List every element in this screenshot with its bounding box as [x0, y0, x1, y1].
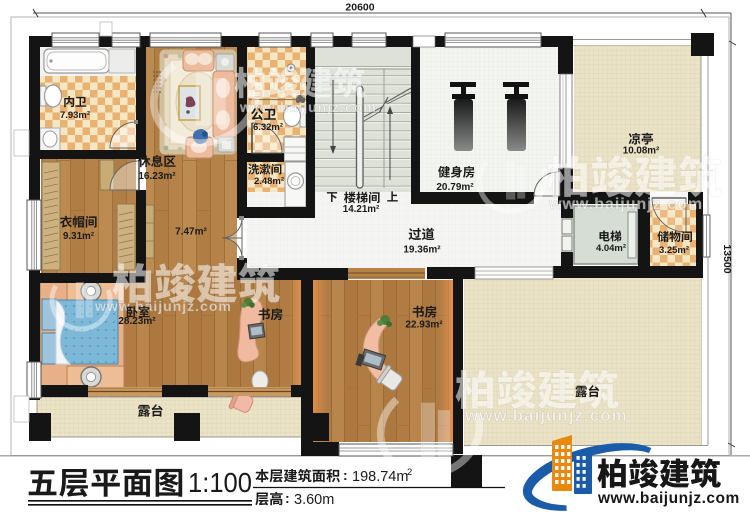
- svg-text:7.93m²: 7.93m²: [60, 110, 90, 121]
- svg-text:4.04m²: 4.04m²: [596, 243, 626, 254]
- svg-text:2.48m²: 2.48m²: [254, 176, 284, 187]
- svg-text:7.47m²: 7.47m²: [175, 227, 207, 238]
- svg-text:6.32m²: 6.32m²: [253, 122, 283, 133]
- svg-text:2: 2: [407, 467, 412, 478]
- svg-text:16.23m²: 16.23m²: [138, 171, 176, 182]
- svg-text:13500: 13500: [721, 244, 733, 273]
- svg-text:3.25m²: 3.25m²: [659, 245, 689, 256]
- svg-text:20.79m²: 20.79m²: [436, 182, 474, 193]
- svg-text:www.baijunjz.com: www.baijunjz.com: [597, 490, 740, 507]
- svg-text:1:100: 1:100: [188, 467, 252, 498]
- svg-text:28.23m²: 28.23m²: [118, 316, 156, 327]
- svg-text::: :: [343, 467, 348, 483]
- svg-text:www.baijunjz.com: www.baijunjz.com: [548, 196, 703, 213]
- svg-text:www.baijunjz.com: www.baijunjz.com: [464, 406, 628, 425]
- svg-text:www.baijunjz.com: www.baijunjz.com: [239, 99, 377, 115]
- svg-text::: :: [285, 490, 290, 506]
- svg-text:10.08m²: 10.08m²: [623, 146, 660, 157]
- svg-text:198.74m: 198.74m: [352, 469, 408, 485]
- svg-text:14.21m²: 14.21m²: [343, 204, 380, 215]
- svg-text:22.93m²: 22.93m²: [405, 320, 443, 331]
- svg-text:3.60m: 3.60m: [294, 492, 334, 508]
- svg-text:9.31m²: 9.31m²: [63, 231, 95, 242]
- svg-text:20600: 20600: [345, 2, 374, 14]
- svg-text:www.baijunjz.com: www.baijunjz.com: [94, 298, 232, 314]
- svg-text:19.36m²: 19.36m²: [403, 245, 441, 256]
